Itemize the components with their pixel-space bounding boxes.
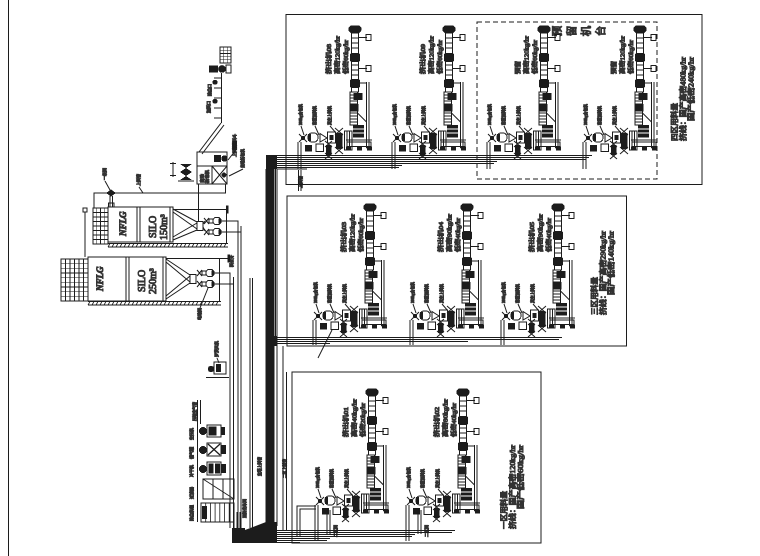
svg-text:自动拆包机: 自动拆包机 bbox=[239, 148, 246, 168]
svg-text:国产低密60kg/hr: 国产低密60kg/hr bbox=[516, 444, 525, 509]
svg-text:高密120kg/hr: 高密120kg/hr bbox=[349, 214, 357, 252]
svg-text:一级阀: 一级阀 bbox=[101, 168, 108, 180]
svg-text:NFLG: NFLG bbox=[95, 266, 105, 292]
svg-text:高密80kg/hr: 高密80kg/hr bbox=[442, 399, 450, 437]
svg-text:挤出机01: 挤出机01 bbox=[342, 407, 350, 437]
svg-text:挤出机05: 挤出机05 bbox=[528, 222, 536, 252]
svg-text:低密40kg/hr: 低密40kg/hr bbox=[450, 403, 458, 437]
svg-text:加料口: 加料口 bbox=[205, 101, 211, 113]
svg-text:留: 留 bbox=[565, 26, 578, 37]
svg-text:罗茨风机: 罗茨风机 bbox=[213, 340, 220, 357]
svg-text:空压机: 空压机 bbox=[188, 427, 195, 440]
svg-text:料位计: 料位计 bbox=[228, 255, 235, 267]
svg-text:150m³: 150m³ bbox=[159, 214, 170, 240]
svg-text:台: 台 bbox=[594, 26, 607, 37]
svg-text:高密40kg/hr: 高密40kg/hr bbox=[351, 399, 359, 437]
svg-text:低密60kg/hr: 低密60kg/hr bbox=[357, 218, 365, 252]
svg-text:冷干机: 冷干机 bbox=[188, 464, 195, 477]
svg-text:挤出机02: 挤出机02 bbox=[433, 407, 441, 437]
svg-text:除尘机组: 除尘机组 bbox=[188, 505, 195, 521]
svg-text:挤出机08: 挤出机08 bbox=[325, 44, 333, 74]
svg-text:压缩空气管: 压缩空气管 bbox=[191, 402, 198, 421]
svg-text:低密40kg/hr: 低密40kg/hr bbox=[454, 218, 462, 252]
svg-text:称重料斗: 称重料斗 bbox=[231, 134, 238, 150]
svg-text:机: 机 bbox=[580, 25, 593, 36]
svg-text:低密20kg/hr: 低密20kg/hr bbox=[359, 403, 367, 437]
svg-text:国产低密240kg/hr: 国产低密240kg/hr bbox=[687, 56, 696, 121]
svg-text:高密120kg/hr: 高密120kg/hr bbox=[428, 36, 436, 74]
svg-text:预: 预 bbox=[552, 25, 564, 36]
svg-text:挤出机09: 挤出机09 bbox=[419, 44, 427, 74]
svg-text:NFLG: NFLG bbox=[118, 211, 128, 237]
svg-text:电动阀: 电动阀 bbox=[196, 308, 203, 320]
svg-text:挤出机03: 挤出机03 bbox=[340, 222, 348, 252]
svg-text:高密90kg/hr: 高密90kg/hr bbox=[446, 214, 454, 252]
svg-text:预留: 预留 bbox=[610, 61, 618, 74]
svg-text:低密60kg/hr: 低密60kg/hr bbox=[627, 40, 635, 74]
svg-text:低密60kg/hr: 低密60kg/hr bbox=[342, 40, 350, 74]
svg-text:SILO: SILO bbox=[137, 270, 148, 292]
svg-text:低密60kg/hr: 低密60kg/hr bbox=[531, 40, 539, 74]
svg-text:预留: 预留 bbox=[514, 61, 522, 74]
svg-text:250m³: 250m³ bbox=[148, 268, 159, 294]
svg-text:挤出机04: 挤出机04 bbox=[437, 222, 445, 252]
svg-text:SILO: SILO bbox=[148, 216, 159, 238]
svg-text:高密90kg/hr: 高密90kg/hr bbox=[537, 214, 545, 252]
svg-text:低密40kg/hr: 低密40kg/hr bbox=[545, 218, 553, 252]
svg-text:二区上料管: 二区上料管 bbox=[281, 459, 288, 478]
svg-text:除尘口: 除尘口 bbox=[206, 84, 212, 96]
svg-text:高密120kg/hr: 高密120kg/hr bbox=[619, 36, 627, 74]
svg-text:拆包机: 拆包机 bbox=[204, 169, 211, 183]
svg-text:过滤器: 过滤器 bbox=[188, 486, 195, 499]
svg-text:宝塔上料管: 宝塔上料管 bbox=[256, 457, 263, 476]
svg-text:至挤出车间: 至挤出车间 bbox=[241, 499, 248, 518]
svg-text:上料管: 上料管 bbox=[297, 176, 304, 188]
svg-text:高密120kg/hr: 高密120kg/hr bbox=[334, 36, 342, 74]
svg-text:储气罐: 储气罐 bbox=[188, 446, 195, 459]
svg-text:低密60kg/hr: 低密60kg/hr bbox=[436, 40, 444, 74]
svg-text:上料管: 上料管 bbox=[135, 174, 142, 186]
svg-text:高密120kg/hr: 高密120kg/hr bbox=[523, 36, 531, 74]
svg-text:国产低密140kg/hr: 国产低密140kg/hr bbox=[607, 230, 616, 295]
